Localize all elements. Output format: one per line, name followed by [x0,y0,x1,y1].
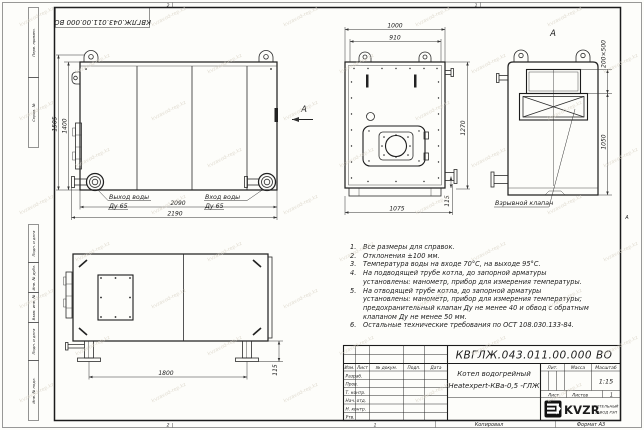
note-text: На отводящей трубе котла, до запорной ар… [363,287,590,322]
inlet-label: Вход воды [205,194,240,201]
dim-leg-span: 1800 [158,370,173,377]
technical-notes: 1.Все размеры для справок. 2.Отклонения … [350,243,590,330]
dim-body-length: 2090 [170,200,185,207]
dim-overall-length: 2190 [167,211,182,218]
margin-label: Взам. инв. № [31,295,36,321]
note-text: Температура воды на входе 70°С, на выход… [363,260,590,269]
format-label: Формат А3 [577,422,605,428]
sheets-label: Листов [571,392,589,398]
dim-height: 1270 [460,120,467,135]
drawing-canvas: 2 1 2 1 А Перв. примен. Справ. № Подп. и… [0,0,644,430]
doc-number: КВГЛЖ.043.011.00.000 ВО [456,350,613,362]
copied-label: Копировал [475,422,504,428]
dim-depth: 1075 [389,206,404,213]
product-name-line1: Котел водогрейный [457,370,531,378]
outlet-label: Выход воды [109,194,149,201]
product-name-line2: Heatexpert-КВа-0,5 -ГЛЖ [448,382,540,390]
outlet-dn: Ду 65 [108,203,128,210]
note-number: 5. [350,287,363,322]
mass-label: Масса [571,365,586,371]
view-arrow-label: А [300,105,307,115]
col-data: Дата [429,365,441,371]
note-item: 3.Температура воды на входе 70°С, на вых… [350,260,590,269]
row-razrab: Разраб. [346,373,363,379]
dim-body-height: 1400 [62,118,69,133]
zone-number: 1 [374,423,377,429]
note-number: 4. [350,269,363,286]
title-block: КВГЛЖ.043.011.00.000 ВО Котел водогрейны… [344,346,621,429]
inlet-dn: Ду 65 [204,203,224,210]
dim-valve-opening: 200×500 [601,40,608,68]
dim-leg-height: 115 [272,364,279,376]
scale-value: 1:15 [599,378,614,386]
note-text: Остальные технические требования по ОСТ … [363,321,590,330]
margin-label: Подп. и дата [31,230,36,257]
bottom-side-view: 1800 115 [64,254,284,380]
margin-label: Инв. № подл. [31,377,36,403]
note-item: 5.На отводящей трубе котла, до запорной … [350,287,590,322]
note-number: 1. [350,243,363,252]
zone-number: 2 [167,3,170,9]
note-number: 6. [350,321,363,330]
sheets-value: 1 [610,393,613,399]
company-line2: ЗАВОД РЭП [595,410,618,415]
col-izm: Изм. [344,365,354,371]
dim-foot: 115 [444,195,451,207]
scale-label: Масштаб [595,365,617,371]
note-item: 2.Отклонения ±100 мм. [350,252,590,261]
zone-number: 2 [167,423,170,429]
note-text: На подводящей трубе котла, до запорной а… [363,269,590,286]
zone-number: 1 [475,3,478,9]
note-text: Все размеры для справок. [363,243,590,252]
dim-overall-height: 1505 [52,116,59,131]
row-nachotd: Нач. отд. [346,398,367,404]
sheet-label: Лист [547,392,559,398]
note-item: 4.На подводящей трубе котла, до запорной… [350,269,590,286]
note-text: Отклонения ±100 мм. [363,252,590,261]
note-number: 3. [350,260,363,269]
col-list: Лист [356,365,368,371]
company-logo: KVZR КОТЕЛЬНЫЙ ЗАВОД РЭП [545,401,619,418]
row-tkontr: Т. контр. [346,390,366,396]
stamp-doc-number: КВГЛЖ.043.011.00.000 ВО [54,18,151,26]
margin-label: Перв. примен. [31,28,36,57]
explosion-valve-callout: Взрывной клапан [495,200,553,207]
note-number: 2. [350,252,363,261]
rear-view-a: А 200×500 1050 Взрывной клапан [491,29,612,207]
lit-label: Лит. [546,365,557,371]
col-docnum: № докум. [375,365,397,371]
front-view: 1000 910 1270 115 1075 [345,23,470,216]
dim-width-body: 910 [389,35,401,42]
row-nkontr: Н. контр. [346,406,367,412]
zone-letter: А [624,215,629,221]
drawing-sheet: 2 1 2 1 А Перв. примен. Справ. № Подп. и… [0,0,644,430]
frame: 2 1 2 1 А [3,3,642,429]
note-item: 1.Все размеры для справок. [350,243,590,252]
dim-width-overall: 1000 [387,23,402,30]
company-line1: КОТЕЛЬНЫЙ [594,404,619,409]
col-podp: Подп. [407,365,420,371]
left-margin-labels: Перв. примен. Справ. № Подп. и дата Инв.… [29,8,39,421]
row-utv: Утв. [346,415,355,421]
dim-rear-height: 1050 [601,134,608,149]
view-a-label: А [549,29,556,39]
margin-label: Подп. и дата [31,328,36,355]
margin-label: Справ. № [31,103,36,122]
top-stamp: КВГЛЖ.043.011.00.000 ВО [54,8,151,28]
row-prov: Пров. [346,382,359,388]
side-view: 1505 1400 2090 2190 Выход воды Ду 65 Вхо… [52,51,314,221]
note-item: 6.Остальные технические требования по ОС… [350,321,590,330]
margin-label: Инв. № дубл. [31,265,36,291]
